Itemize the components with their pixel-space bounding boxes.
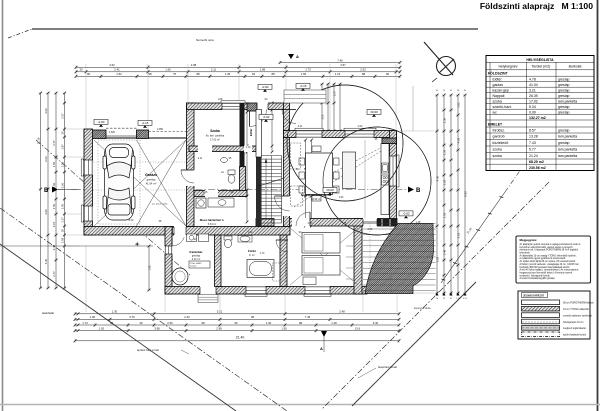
svg-text:30: 30 xyxy=(61,131,65,135)
svg-text:FÖLDSZINT: FÖLDSZINT xyxy=(488,72,508,76)
svg-text:5.21: 5.21 xyxy=(217,310,223,314)
svg-text:B: B xyxy=(416,188,421,194)
svg-text:Terület (m2): Terület (m2) xyxy=(532,65,551,69)
svg-text:Előtér: Előtér xyxy=(493,78,503,82)
svg-text:Kazánház: Kazánház xyxy=(190,250,204,254)
svg-text:Nappali: Nappali xyxy=(493,94,505,98)
svg-text:1.00: 1.00 xyxy=(322,114,325,119)
svg-text:17.02 m²: 17.02 m² xyxy=(210,139,220,142)
svg-text:EMELET: EMELET xyxy=(488,122,503,126)
svg-text:1.62: 1.62 xyxy=(443,179,447,185)
svg-text:greslap: greslap xyxy=(147,178,156,182)
svg-text:rendszerű, hőszigetelt kivitel: rendszerű, hőszigetelt kivitelű. xyxy=(520,274,551,277)
svg-text:Garázs: Garázs xyxy=(145,173,157,177)
svg-text:41.04: 41.04 xyxy=(529,83,538,87)
svg-text:3.21: 3.21 xyxy=(529,89,536,93)
svg-text:lam.parketta: lam.parketta xyxy=(558,100,577,104)
svg-text:2.950: 2.950 xyxy=(157,128,164,131)
svg-text:8. m²: 8. m² xyxy=(249,254,255,257)
svg-text:gardrob: gardrob xyxy=(493,135,505,139)
svg-text:telekhatár: telekhatár xyxy=(42,311,54,315)
svg-text:Helyiségnév: Helyiségnév xyxy=(498,65,517,69)
svg-text:38: 38 xyxy=(251,315,255,319)
svg-text:24.99 m²: 24.99 m² xyxy=(311,198,321,201)
svg-text:1.73: 1.73 xyxy=(82,321,88,325)
svg-text:a nyilászárók egyedi gyártású: a nyilászárók egyedi gyártású fa szerkez… xyxy=(520,257,567,260)
svg-text:1.17: 1.17 xyxy=(61,217,65,223)
svg-text:1.62: 1.62 xyxy=(248,231,253,234)
svg-text:-0.90: -0.90 xyxy=(262,85,269,89)
svg-text:4.78: 4.78 xyxy=(529,78,536,82)
svg-text:1.88: 1.88 xyxy=(218,98,223,101)
svg-text:helyszínen ellenőrizendők, elt: helyszínen ellenőrizendők, eltérés eseté… xyxy=(520,246,573,249)
svg-text:21.24: 21.24 xyxy=(529,154,538,158)
svg-text:38 cm POROTHERM falazat: 38 cm POROTHERM falazat xyxy=(563,302,594,305)
svg-text:1.50: 1.50 xyxy=(99,326,105,330)
svg-text:greslap: greslap xyxy=(558,105,570,109)
svg-text:greslap: greslap xyxy=(558,89,570,93)
svg-text:szoba: szoba xyxy=(493,100,502,104)
svg-text:88: 88 xyxy=(271,72,275,76)
svg-text:230.56 m2: 230.56 m2 xyxy=(529,166,546,170)
svg-text:1.08: 1.08 xyxy=(61,237,65,243)
svg-text:P.fűt.+HMV: P.fűt.+HMV xyxy=(191,262,203,265)
svg-text:Szoba: Szoba xyxy=(210,129,220,133)
svg-text:2.63: 2.63 xyxy=(360,68,366,72)
svg-text:2.77: 2.77 xyxy=(52,271,56,277)
svg-text:41.04 m²: 41.04 m² xyxy=(146,182,157,186)
svg-text:17.02: 17.02 xyxy=(529,100,538,104)
svg-text:1.90: 1.90 xyxy=(90,315,96,319)
svg-text:8.20: 8.20 xyxy=(129,219,134,222)
svg-text:fűt. lam. parketta: fűt. lam. parketta xyxy=(206,135,225,138)
svg-text:2.48: 2.48 xyxy=(339,310,345,314)
svg-text:1.35: 1.35 xyxy=(443,149,447,155)
svg-text:A terasz burkolata fagyálló gr: A terasz burkolata fagyálló greslap. xyxy=(520,277,556,280)
svg-text:1.50: 1.50 xyxy=(52,203,56,209)
svg-text:21.40: 21.40 xyxy=(236,336,245,340)
svg-text:90: 90 xyxy=(87,72,91,76)
svg-text:1.97: 1.97 xyxy=(61,144,65,150)
svg-text:88: 88 xyxy=(362,72,366,76)
svg-text:10 cm YTONG válaszfal: 10 cm YTONG válaszfal xyxy=(563,308,589,311)
svg-text:Burkolat: Burkolat xyxy=(569,65,582,69)
svg-text:7.43: 7.43 xyxy=(529,141,536,145)
svg-text:1.30: 1.30 xyxy=(443,117,447,123)
svg-text:4.57: 4.57 xyxy=(340,63,346,67)
svg-text:2.48: 2.48 xyxy=(52,244,56,250)
svg-text:1.86: 1.86 xyxy=(260,68,266,72)
svg-text:5.77: 5.77 xyxy=(529,148,536,152)
svg-text:építési hely vonal: építési hely vonal xyxy=(137,348,159,352)
svg-text:greslap: greslap xyxy=(558,111,570,115)
svg-text:wc: wc xyxy=(493,111,498,115)
svg-text:lam.parketta: lam.parketta xyxy=(558,154,577,158)
svg-text:3.21 m²: 3.21 m² xyxy=(192,258,201,261)
svg-text:lam.parketta: lam.parketta xyxy=(558,148,577,152)
svg-text:8.93: 8.93 xyxy=(464,191,468,197)
svg-text:kazán: kazán xyxy=(191,266,198,268)
svg-text:B: B xyxy=(44,188,49,194)
svg-text:meglévő tégla falazat: meglévő tégla falazat xyxy=(563,327,586,330)
svg-text:98: 98 xyxy=(148,72,152,76)
svg-text:2.57: 2.57 xyxy=(61,113,65,119)
svg-text:8.57: 8.57 xyxy=(529,129,536,133)
svg-text:Előtér: Előtér xyxy=(249,129,253,136)
svg-text:JELMAGYARÁZAT: JELMAGYARÁZAT xyxy=(523,294,545,297)
svg-text:-0.15: -0.15 xyxy=(142,121,149,125)
svg-text:5.34 m²: 5.34 m² xyxy=(208,223,217,226)
svg-text:értesíteni kell. A falazatok P: értesíteni kell. A falazatok POROTHERM 3… xyxy=(520,249,579,252)
svg-text:4.20: 4.20 xyxy=(308,222,313,225)
svg-text:HELYISÉGLISTA: HELYISÉGLISTA xyxy=(526,57,554,62)
svg-text:3.62: 3.62 xyxy=(44,108,48,114)
svg-text:hőszigetelés 10 cm: hőszigetelés 10 cm xyxy=(563,321,583,324)
svg-text:1.48: 1.48 xyxy=(443,249,447,255)
svg-text:beépítési vonal: beépítési vonal xyxy=(378,365,397,369)
svg-text:1.50: 1.50 xyxy=(165,68,171,72)
svg-text:1.48: 1.48 xyxy=(416,221,421,224)
svg-text:3.02: 3.02 xyxy=(436,256,440,262)
svg-text:1.55: 1.55 xyxy=(301,72,307,76)
svg-text:1.50: 1.50 xyxy=(52,161,56,167)
svg-text:98: 98 xyxy=(299,321,303,325)
svg-text:6.02: 6.02 xyxy=(44,156,48,162)
svg-text:Némethi utca: Némethi utca xyxy=(196,38,214,42)
svg-text:132.27 m2: 132.27 m2 xyxy=(529,116,546,120)
svg-text:A: A xyxy=(320,346,323,351)
svg-text:1.08: 1.08 xyxy=(149,265,152,270)
svg-text:1.73: 1.73 xyxy=(305,68,311,72)
svg-text:68.29 m2: 68.29 m2 xyxy=(529,160,544,164)
svg-text:1.28: 1.28 xyxy=(331,321,337,325)
svg-text:-0.60: -0.60 xyxy=(403,212,410,216)
svg-text:greslap: greslap xyxy=(558,83,570,87)
svg-text:2.11: 2.11 xyxy=(198,157,203,160)
svg-text:szoba: szoba xyxy=(493,148,502,152)
svg-text:1.30: 1.30 xyxy=(266,321,272,325)
svg-text:2.63: 2.63 xyxy=(358,125,363,128)
svg-text:1.500: 1.500 xyxy=(109,131,116,134)
svg-text:A válaszfalak 10 cm vastag YTO: A válaszfalak 10 cm vastag YTONG elemekb… xyxy=(520,254,577,257)
svg-text:3.98: 3.98 xyxy=(154,326,160,330)
svg-text:szárító-házt.: szárító-házt. xyxy=(493,105,512,109)
svg-text:lam.parketta: lam.parketta xyxy=(558,135,577,139)
svg-text:Mosó-háztartási h.: Mosó-háztartási h. xyxy=(200,218,225,222)
svg-text:2.05: 2.05 xyxy=(368,228,373,231)
svg-text:Nappali étkező konyha: Nappali étkező konyha xyxy=(301,193,332,197)
svg-text:±0.00: ±0.00 xyxy=(370,110,378,114)
svg-text:1.50: 1.50 xyxy=(61,203,65,209)
svg-text:4.60: 4.60 xyxy=(44,209,48,215)
svg-text:30: 30 xyxy=(61,229,65,233)
svg-text:2.41: 2.41 xyxy=(114,68,120,72)
svg-text:88: 88 xyxy=(196,72,200,76)
svg-text:4.28: 4.28 xyxy=(457,137,461,143)
svg-text:A tető 40 fokos hajlású, cseré: A tető 40 fokos hajlású, cserépfedéssel.… xyxy=(520,269,579,272)
svg-text:épület határoló kontúr: épület határoló kontúr xyxy=(563,334,586,337)
svg-text:közlekedő: közlekedő xyxy=(493,141,509,145)
svg-text:Az épület körüli járda 60 cm s: Az épület körüli járda 60 cm széles, 2% … xyxy=(520,260,577,263)
svg-text:1.62: 1.62 xyxy=(457,102,461,108)
svg-text:30: 30 xyxy=(79,68,83,72)
svg-text:1.53: 1.53 xyxy=(443,212,447,218)
svg-text:63: 63 xyxy=(252,72,256,76)
svg-text:7.46: 7.46 xyxy=(337,58,343,62)
svg-text:1.13: 1.13 xyxy=(335,72,341,76)
svg-text:greslap: greslap xyxy=(558,94,570,98)
svg-text:jav. külső beálló: jav. külső beálló xyxy=(151,204,168,206)
svg-text:4.62: 4.62 xyxy=(109,63,115,67)
svg-text:A: A xyxy=(296,54,299,59)
svg-text:2.66: 2.66 xyxy=(61,182,65,188)
svg-text:monolit vasbeton szerkezet: monolit vasbeton szerkezet xyxy=(563,314,592,317)
svg-text:13.28: 13.28 xyxy=(529,135,538,139)
svg-text:4.76: 4.76 xyxy=(129,315,135,319)
svg-text:greslap: greslap xyxy=(558,141,570,145)
svg-text:6.30: 6.30 xyxy=(373,321,379,325)
svg-text:greslap: greslap xyxy=(558,129,570,133)
svg-text:1.93: 1.93 xyxy=(339,196,344,199)
svg-text:7.46: 7.46 xyxy=(305,315,311,319)
svg-text:4.30: 4.30 xyxy=(436,175,440,181)
svg-text:±0.00: ±0.00 xyxy=(326,188,334,192)
svg-text:2.50: 2.50 xyxy=(167,321,173,325)
svg-text:1.30: 1.30 xyxy=(112,310,118,314)
svg-text:kazán-gép: kazán-gép xyxy=(493,89,509,93)
svg-text:90: 90 xyxy=(234,321,238,325)
svg-text:Megjegyzés:: Megjegyzés: xyxy=(520,238,538,242)
svg-text:1.70: 1.70 xyxy=(260,252,265,255)
svg-text:horganyzott acel lemezből kész: horganyzott acel lemezből készül. A kémé… xyxy=(520,272,573,275)
svg-text:fürdősz.: fürdősz. xyxy=(493,129,505,133)
svg-text:szoba: szoba xyxy=(493,154,502,158)
svg-text:greslap: greslap xyxy=(558,78,570,82)
svg-text:2.98: 2.98 xyxy=(216,326,222,330)
svg-text:75: 75 xyxy=(173,72,177,76)
svg-text:Földszinti alaprajz M 1:100: Földszinti alaprajz M 1:100 xyxy=(480,1,593,11)
svg-text:készülnek.: készülnek. xyxy=(520,253,531,255)
svg-text:3.02: 3.02 xyxy=(457,232,461,238)
svg-text:Fürdő: Fürdő xyxy=(248,249,256,253)
svg-text:-0.15: -0.15 xyxy=(300,84,307,88)
svg-text:2.57: 2.57 xyxy=(334,90,337,95)
svg-text:3.98: 3.98 xyxy=(191,63,197,67)
svg-text:1.52: 1.52 xyxy=(116,72,122,76)
svg-text:2.77: 2.77 xyxy=(52,140,56,146)
svg-text:90: 90 xyxy=(386,72,390,76)
svg-text:A födém monolit vasbeton, vast: A födém monolit vasbeton, vastagsága 20 … xyxy=(520,263,580,266)
svg-text:2.41: 2.41 xyxy=(298,125,303,128)
svg-text:13.6: 13.6 xyxy=(355,326,361,330)
svg-text:26.39: 26.39 xyxy=(529,94,538,98)
svg-text:-0.90: -0.90 xyxy=(98,120,105,124)
svg-text:-0.02: -0.02 xyxy=(263,115,270,119)
svg-text:1.35: 1.35 xyxy=(225,72,231,76)
svg-text:szennyvíz akna: szennyvíz akna xyxy=(414,307,431,310)
svg-text:betőnből, B60.50 betonacél has: betőnből, B60.50 betonacél használatával… xyxy=(520,266,571,269)
svg-text:2.40: 2.40 xyxy=(184,315,190,319)
svg-text:1.90: 1.90 xyxy=(281,326,287,330)
svg-text:Az alaprajzon jelzett méretek: Az alaprajzon jelzett méretek a végleges… xyxy=(520,243,581,246)
svg-text:1.25: 1.25 xyxy=(203,191,208,194)
svg-text:2.07: 2.07 xyxy=(52,221,56,227)
svg-text:30: 30 xyxy=(139,321,143,325)
svg-text:0.99: 0.99 xyxy=(529,111,536,115)
svg-text:5.34: 5.34 xyxy=(529,105,536,109)
svg-text:2.11: 2.11 xyxy=(211,68,217,72)
svg-text:98: 98 xyxy=(201,321,205,325)
svg-text:1.10: 1.10 xyxy=(246,146,251,149)
svg-text:garázs: garázs xyxy=(493,83,504,87)
svg-text:5.30: 5.30 xyxy=(44,258,48,264)
